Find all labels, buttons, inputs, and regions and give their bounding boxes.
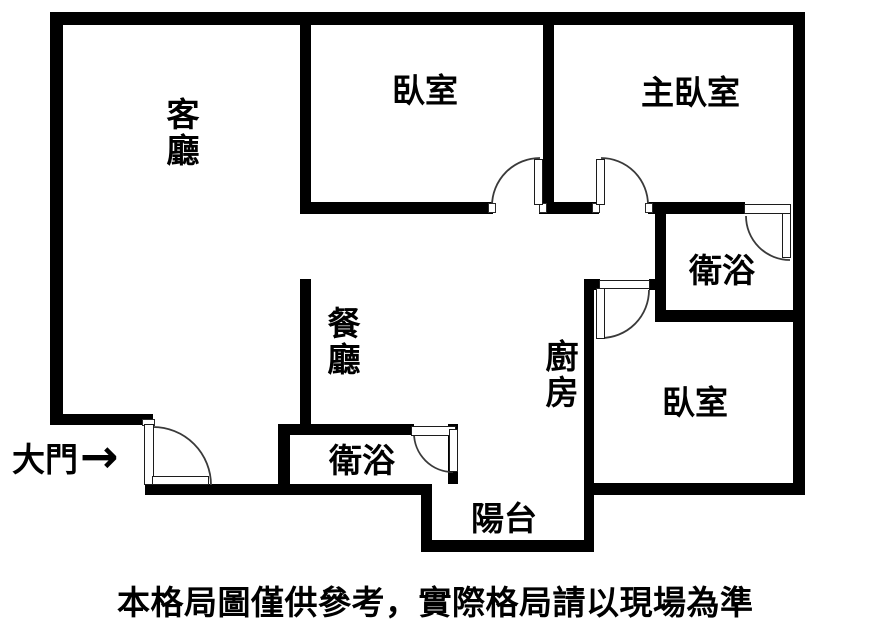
bedroom-top-door-arc — [492, 158, 540, 206]
master-bedroom-door-arc — [601, 158, 648, 205]
bedroom-bottom-door-frame — [599, 280, 650, 289]
entrance-label: 大門 — [12, 443, 78, 478]
room-label-bath-top: 衛浴 — [689, 254, 755, 289]
room-label-bedroom-bottom: 臥室 — [662, 386, 728, 421]
room-label-master-bedroom: 主臥室 — [641, 76, 740, 111]
bedroom-top-door-leaf — [534, 159, 543, 205]
room-label-bath-bottom: 衛浴 — [329, 444, 395, 479]
floor-plan: 客廳 臥室 主臥室 衛浴 餐廳 廚房 臥室 衛浴 陽台 大門 → 本格局圖僅供參… — [0, 0, 889, 629]
bedroom-top-door-jamb-left — [488, 203, 496, 213]
room-label-kitchen: 廚房 — [543, 339, 576, 411]
entrance-arrow-icon: → — [80, 433, 119, 479]
bedroom-bottom-door-leaf — [596, 288, 605, 339]
bath-bottom-door-leaf — [449, 429, 458, 472]
disclaimer-caption: 本格局圖僅供參考，實際格局請以現場為準 — [117, 576, 754, 624]
bath-bottom-door-arc — [414, 433, 453, 472]
room-label-bedroom-top: 臥室 — [392, 74, 458, 109]
master-bedroom-door-jamb-right — [645, 203, 653, 213]
main-door-leaf-open — [152, 476, 209, 485]
room-label-balcony: 陽台 — [471, 502, 537, 537]
room-label-dining: 餐廳 — [325, 306, 358, 378]
bath-top-door-leaf — [782, 213, 791, 258]
bedroom-bottom-door-arc — [601, 290, 649, 338]
master-bedroom-door-leaf — [596, 159, 605, 205]
room-label-living: 客廳 — [164, 97, 197, 169]
